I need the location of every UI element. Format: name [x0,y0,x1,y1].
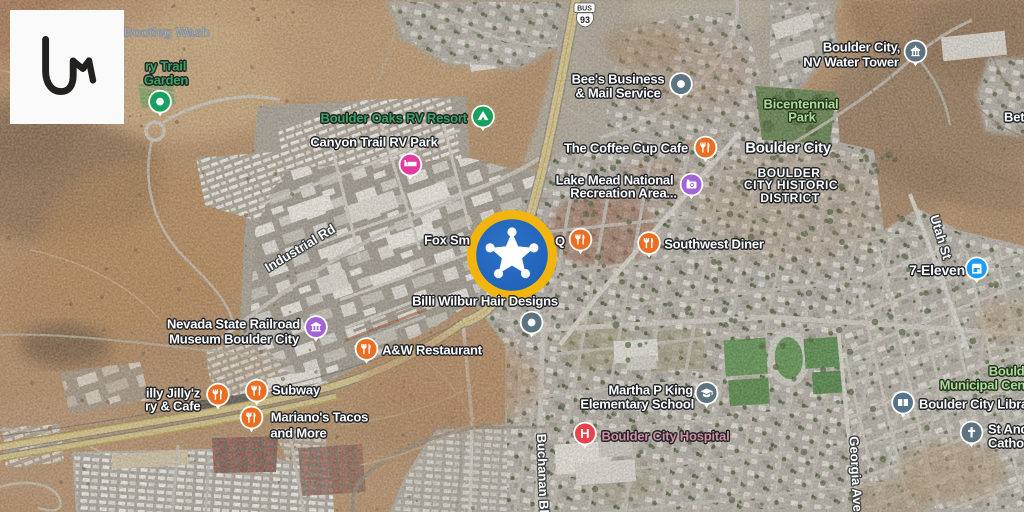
svg-text:H: H [580,426,589,441]
svg-text:93: 93 [580,15,590,25]
svg-text:BUS: BUS [577,6,592,13]
